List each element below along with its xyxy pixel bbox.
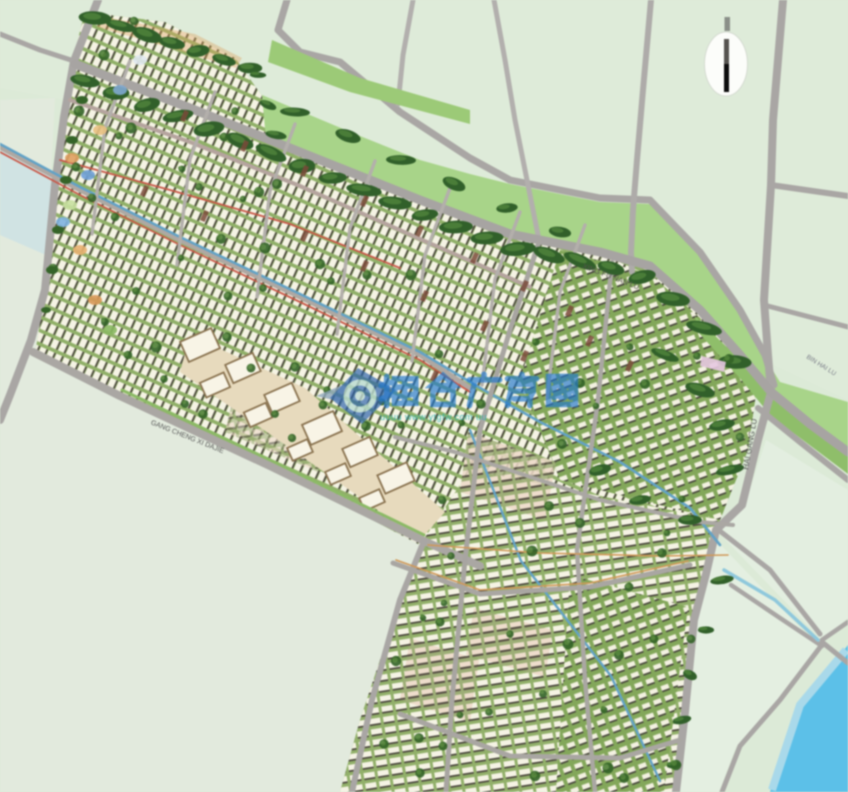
svg-text:uuuu www.ytgfw.com uu: uuuu www.ytgfw.com uu <box>380 412 487 422</box>
